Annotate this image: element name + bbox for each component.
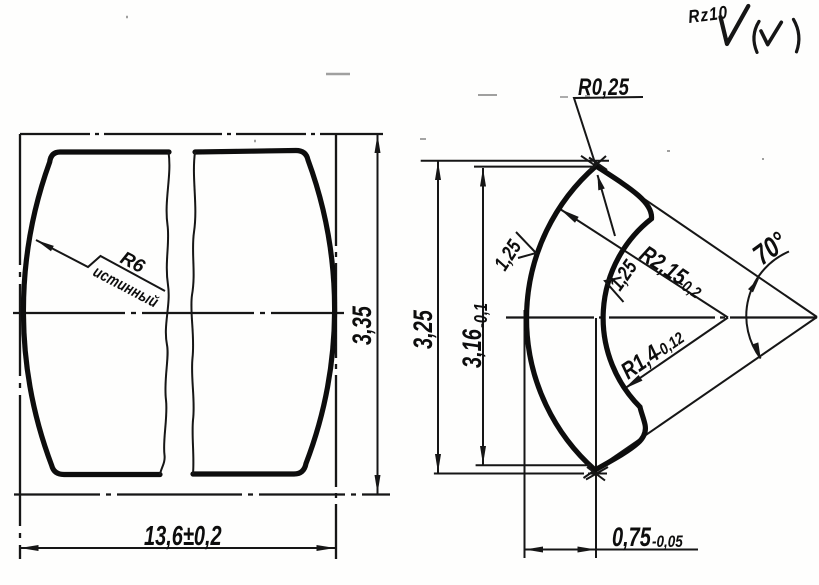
svg-text:-0,1: -0,1: [472, 303, 492, 328]
svg-text:-0,05: -0,05: [652, 533, 683, 552]
svg-text:13,6±0,2: 13,6±0,2: [144, 521, 222, 552]
svg-text:3,25: 3,25: [408, 309, 437, 349]
svg-text:3,35: 3,35: [347, 305, 376, 345]
svg-text:0,75: 0,75: [612, 522, 652, 553]
svg-text:3,16: 3,16: [457, 328, 486, 368]
